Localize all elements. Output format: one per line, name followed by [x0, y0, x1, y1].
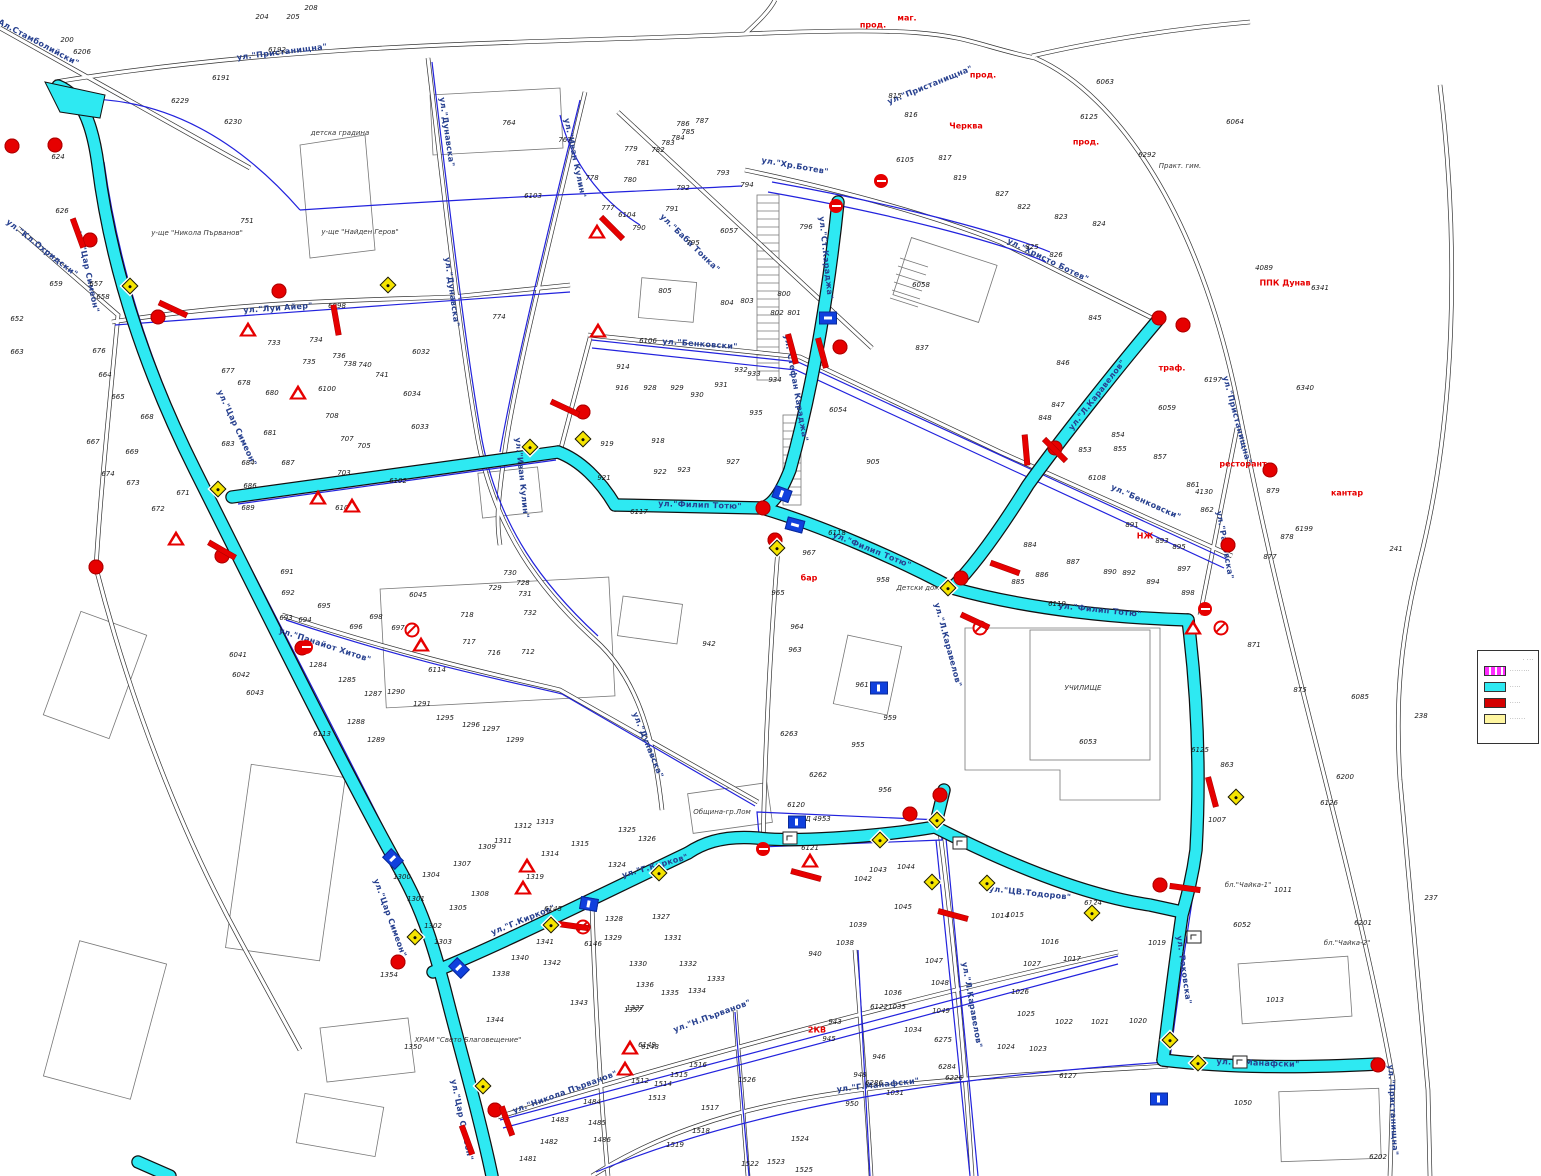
highlight-network [58, 86, 1378, 1176]
base-map-svg [0, 0, 1541, 1176]
legend-label: ········· [1510, 668, 1530, 673]
legend-swatch [1484, 698, 1506, 708]
water-lines [60, 62, 1228, 1176]
legend-label: ····· [1510, 684, 1521, 689]
highlight-junction-blob [45, 82, 105, 118]
legend-swatch [1484, 714, 1506, 724]
street-casing [0, 0, 1452, 1176]
legend-header: · ··· [1484, 657, 1534, 662]
legend-swatch [1484, 666, 1506, 676]
legend-label: ······· [1510, 716, 1526, 721]
legend-item: ······· [1484, 714, 1534, 723]
map-legend: · ··· ·························· [1477, 650, 1539, 744]
street-inner [0, 0, 1452, 1176]
legend-item: ····· [1484, 682, 1534, 691]
legend-rows: ·························· [1484, 666, 1534, 723]
map-canvas[interactable]: ул."Ал.Стамболийски"ул."Пристанищна"ул."… [0, 0, 1541, 1176]
legend-label: ····· [1510, 700, 1521, 705]
highlight-casing [58, 86, 1378, 1176]
legend-swatch [1484, 682, 1506, 692]
legend-item: ········· [1484, 666, 1534, 675]
legend-item: ····· [1484, 698, 1534, 707]
